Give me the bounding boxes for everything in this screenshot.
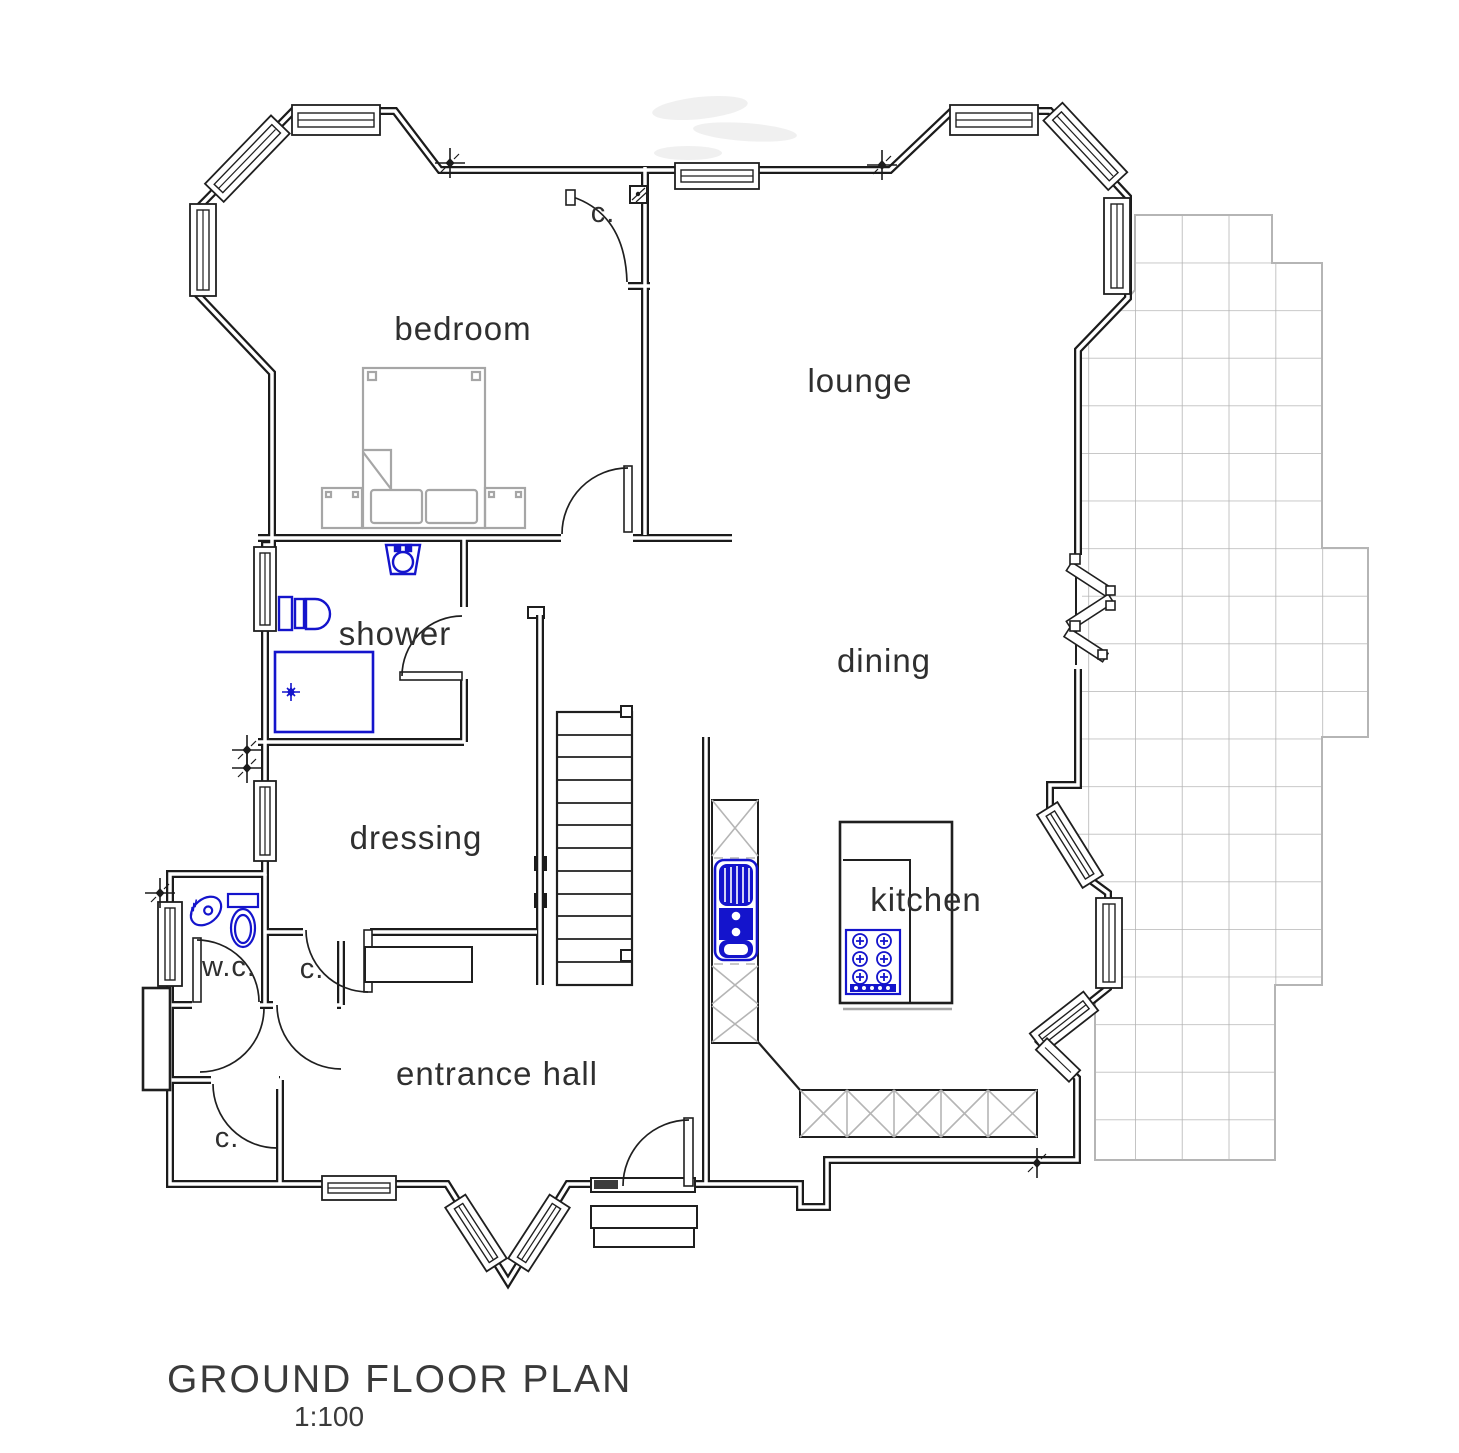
gas-hob <box>846 930 900 994</box>
title-block: GROUND FLOOR PLAN 1:100 <box>167 1358 632 1432</box>
kitchen-label: kitchen <box>870 881 982 918</box>
floor-plan-canvas: bedroom c. lounge shower dining dressing… <box>0 0 1459 1453</box>
closet-bottom-label: c. <box>215 1122 240 1154</box>
bay-window-lounge-angled <box>1043 103 1127 190</box>
bedroom-label: bedroom <box>394 310 531 347</box>
hall-wardrobe <box>365 947 472 982</box>
survey-marker <box>867 150 897 180</box>
kitchen-counter-bottom <box>800 1090 1037 1137</box>
shower-tray <box>275 652 373 732</box>
window-dressing-left <box>254 781 276 861</box>
closet-mid-label: c. <box>300 953 325 985</box>
wc-label: w.c. <box>201 951 256 983</box>
patio-tiles <box>1050 215 1368 1160</box>
plan-title: GROUND FLOOR PLAN <box>167 1358 632 1401</box>
door-bedroom <box>562 466 632 534</box>
nightstand-left <box>322 488 362 528</box>
bay-window-bedroom-angled <box>205 115 290 201</box>
bay-window-lounge-top <box>950 105 1038 135</box>
radiator-icon <box>630 186 647 203</box>
floor-plan-page: bedroom c. lounge shower dining dressing… <box>0 0 1459 1453</box>
plan-scale: 1:100 <box>294 1401 364 1432</box>
window-kitchen-corner <box>1036 1038 1080 1081</box>
dining-label: dining <box>837 642 931 679</box>
bay-window-hall-right-angled <box>508 1195 570 1272</box>
kitchen-sink <box>715 860 757 960</box>
window-shower-left <box>254 547 276 631</box>
bay-window-hall-left-angled <box>445 1195 507 1272</box>
bay-window-kitchen-angled-bottom <box>1030 992 1098 1053</box>
toilet <box>228 894 258 947</box>
toilet <box>279 597 330 630</box>
bay-window-bedroom-top <box>292 105 380 135</box>
window-wc-left <box>158 902 182 986</box>
lounge-label: lounge <box>807 362 912 399</box>
door-hall-lobby <box>200 1008 264 1072</box>
entrance-hall-label: entrance hall <box>396 1055 598 1092</box>
doors <box>193 190 1115 1247</box>
nightstand-right <box>485 488 525 528</box>
corner-basin <box>183 889 226 932</box>
porch-pillar <box>143 988 170 1090</box>
wash-basin <box>386 545 420 574</box>
double-bed <box>322 368 525 528</box>
front-door-sidelight <box>594 1180 618 1189</box>
front-door <box>591 1118 695 1192</box>
survey-marker <box>1022 1148 1052 1178</box>
window-lounge-top <box>675 163 759 189</box>
shower-label: shower <box>339 615 451 652</box>
dressing-label: dressing <box>350 819 483 856</box>
closet-top-label: c. <box>591 197 616 229</box>
window-hall-bottom <box>322 1176 396 1200</box>
watermark-smudge <box>651 92 797 160</box>
bay-window-kitchen-right <box>1096 898 1122 988</box>
door-closet-mid <box>277 1005 341 1069</box>
bay-window-lounge-right <box>1104 198 1130 294</box>
porch-steps <box>591 1206 697 1247</box>
bay-window-bedroom-left <box>190 204 216 296</box>
survey-marker <box>232 753 262 783</box>
